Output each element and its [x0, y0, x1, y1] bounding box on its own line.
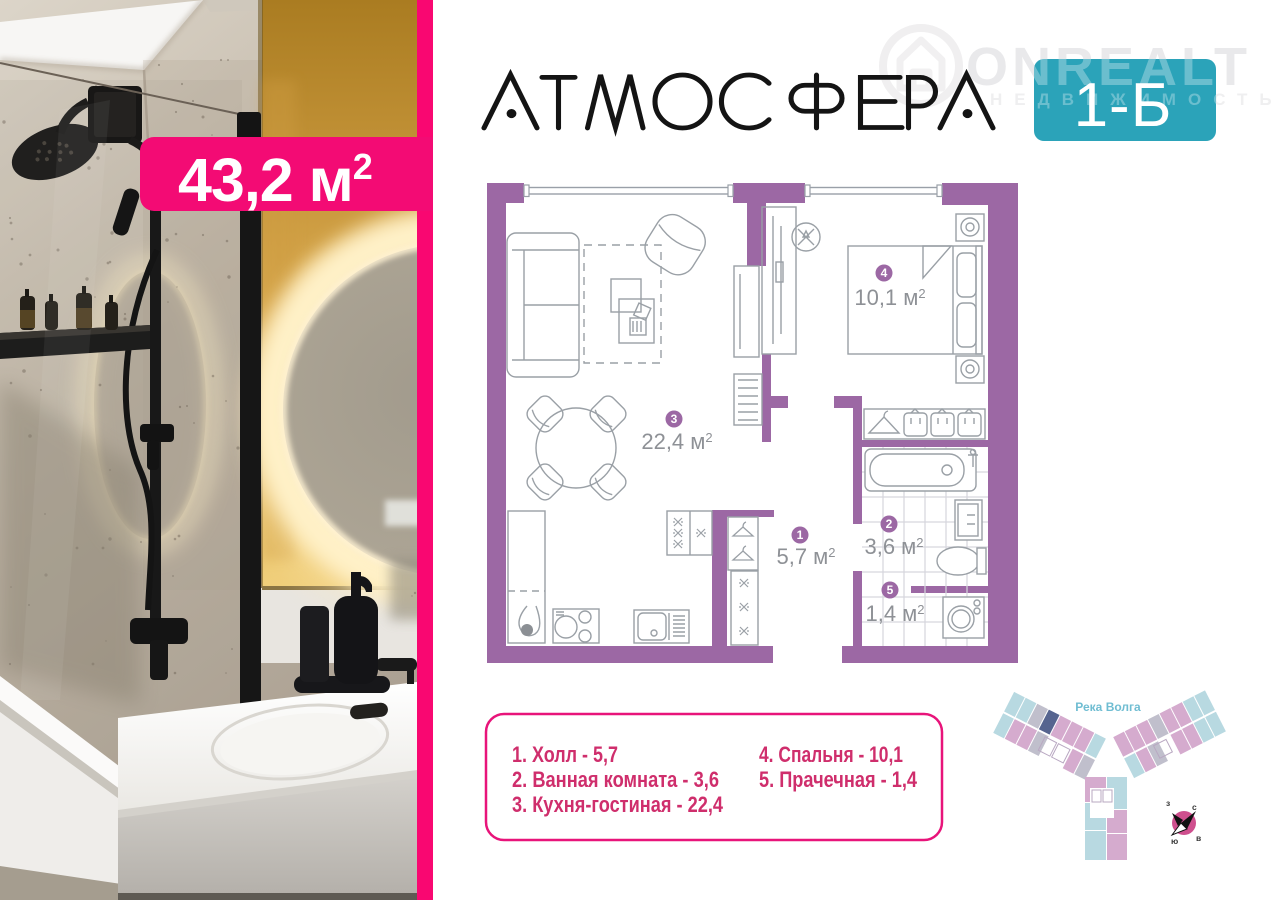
svg-text:Река Волга: Река Волга [1075, 700, 1141, 714]
svg-text:в: в [1196, 833, 1201, 843]
svg-text:4. Спальня - 10,1: 4. Спальня - 10,1 [759, 742, 903, 767]
svg-text:5: 5 [887, 583, 894, 597]
svg-text:22,4 м2: 22,4 м2 [641, 429, 712, 454]
svg-text:2. Ванная комната - 3,6: 2. Ванная комната - 3,6 [512, 767, 719, 792]
svg-text:10,1 м2: 10,1 м2 [854, 285, 925, 310]
svg-text:2: 2 [886, 517, 893, 531]
svg-text:3. Кухня-гостиная - 22,4: 3. Кухня-гостиная - 22,4 [512, 792, 724, 817]
svg-text:1: 1 [797, 528, 804, 542]
svg-text:3: 3 [671, 412, 678, 426]
svg-text:3,6 м2: 3,6 м2 [864, 534, 923, 559]
svg-text:з: з [1166, 798, 1170, 808]
svg-text:ю: ю [1171, 836, 1178, 846]
svg-text:5. Прачечная - 1,4: 5. Прачечная - 1,4 [759, 767, 918, 792]
svg-text:1. Холл - 5,7: 1. Холл - 5,7 [512, 742, 618, 767]
svg-text:4: 4 [881, 266, 888, 280]
svg-text:с: с [1192, 802, 1197, 812]
svg-text:43,2 м2: 43,2 м2 [178, 146, 372, 214]
svg-text:1-Б: 1-Б [1074, 71, 1173, 140]
svg-text:5,7 м2: 5,7 м2 [776, 544, 835, 569]
svg-text:1,4 м2: 1,4 м2 [865, 601, 924, 626]
